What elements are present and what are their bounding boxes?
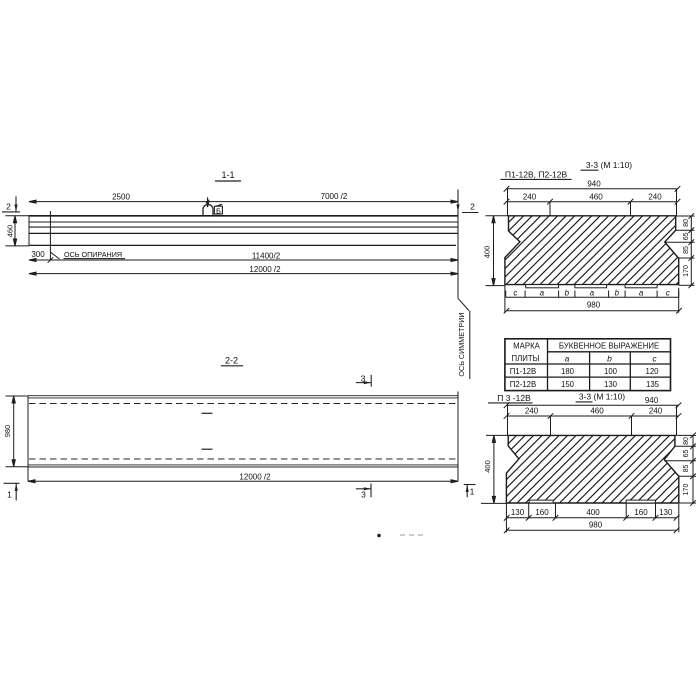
svg-text:1: 1 — [470, 486, 475, 496]
svg-text:100: 100 — [604, 367, 618, 376]
svg-text:130: 130 — [604, 380, 618, 389]
svg-text:12000 /2: 12000 /2 — [239, 473, 271, 482]
svg-text:3-3 (М 1:10): 3-3 (М 1:10) — [586, 160, 632, 170]
svg-text:12000 /2: 12000 /2 — [249, 265, 281, 274]
svg-text:170: 170 — [683, 265, 690, 277]
svg-text:240: 240 — [525, 407, 539, 416]
svg-text:П2-12В: П2-12В — [510, 380, 536, 389]
svg-text:130: 130 — [511, 508, 525, 517]
svg-text:460: 460 — [589, 193, 603, 202]
svg-text:2: 2 — [470, 202, 475, 212]
svg-text:3: 3 — [361, 373, 366, 383]
svg-text:180: 180 — [561, 367, 575, 376]
svg-text:ОСЬ СИММЕТРИИ: ОСЬ СИММЕТРИИ — [457, 312, 466, 376]
svg-text:БУКВЕННОЕ ВЫРАЖЕНИЕ: БУКВЕННОЕ ВЫРАЖЕНИЕ — [559, 342, 659, 351]
svg-text:b: b — [615, 289, 620, 298]
svg-text:170: 170 — [683, 484, 690, 496]
svg-text:135: 135 — [646, 380, 660, 389]
svg-text:65: 65 — [683, 450, 690, 458]
svg-text:ПЛИТЫ: ПЛИТЫ — [512, 354, 540, 363]
svg-text:2500: 2500 — [112, 193, 130, 202]
svg-text:П 3 -12В: П 3 -12В — [497, 393, 531, 403]
svg-text:240: 240 — [649, 407, 663, 416]
svg-text:a: a — [590, 289, 595, 298]
svg-text:400: 400 — [483, 460, 492, 473]
svg-text:2: 2 — [6, 202, 11, 212]
svg-text:130: 130 — [659, 508, 673, 517]
svg-text:980: 980 — [3, 425, 12, 438]
svg-text:1: 1 — [7, 489, 12, 499]
svg-text:c: c — [513, 289, 517, 298]
svg-text:b: b — [607, 354, 612, 364]
svg-text:160: 160 — [634, 508, 648, 517]
svg-text:1-1: 1-1 — [221, 170, 234, 180]
svg-text:65: 65 — [683, 232, 690, 240]
svg-text:980: 980 — [589, 521, 603, 530]
svg-text:80: 80 — [683, 437, 690, 445]
svg-text:460: 460 — [590, 407, 604, 416]
svg-text:b: b — [565, 289, 570, 298]
svg-text:ОСЬ ОПИРАНИЯ: ОСЬ ОПИРАНИЯ — [64, 250, 122, 259]
svg-text:a: a — [540, 289, 545, 298]
svg-text:3-3 (М 1:10): 3-3 (М 1:10) — [579, 392, 625, 402]
svg-text:a: a — [639, 289, 644, 298]
svg-text:85: 85 — [683, 465, 690, 473]
svg-text:120: 120 — [645, 367, 659, 376]
svg-text:МАРКА: МАРКА — [513, 342, 540, 351]
svg-text:240: 240 — [648, 193, 662, 202]
svg-text:300: 300 — [31, 250, 45, 259]
svg-text:150: 150 — [561, 380, 575, 389]
svg-text:П1-12В, П2-12В: П1-12В, П2-12В — [505, 169, 568, 179]
svg-text:400: 400 — [586, 508, 600, 517]
svg-text:3: 3 — [361, 490, 366, 500]
svg-text:7000 /2: 7000 /2 — [321, 192, 348, 201]
svg-text:240: 240 — [523, 193, 537, 202]
svg-text:940: 940 — [645, 396, 659, 405]
svg-text:85: 85 — [683, 246, 690, 254]
svg-text:160: 160 — [535, 508, 549, 517]
svg-text:Б: Б — [216, 207, 221, 216]
svg-text:11400/2: 11400/2 — [252, 252, 281, 261]
svg-text:2-2: 2-2 — [225, 356, 238, 366]
svg-text:980: 980 — [587, 301, 601, 310]
svg-text:П1-12В: П1-12В — [510, 367, 536, 376]
svg-text:460: 460 — [6, 225, 15, 238]
svg-text:80: 80 — [683, 219, 690, 227]
svg-text:a: a — [565, 354, 570, 364]
svg-text:940: 940 — [587, 180, 601, 189]
svg-text:c: c — [666, 289, 670, 298]
svg-text:400: 400 — [483, 246, 492, 259]
